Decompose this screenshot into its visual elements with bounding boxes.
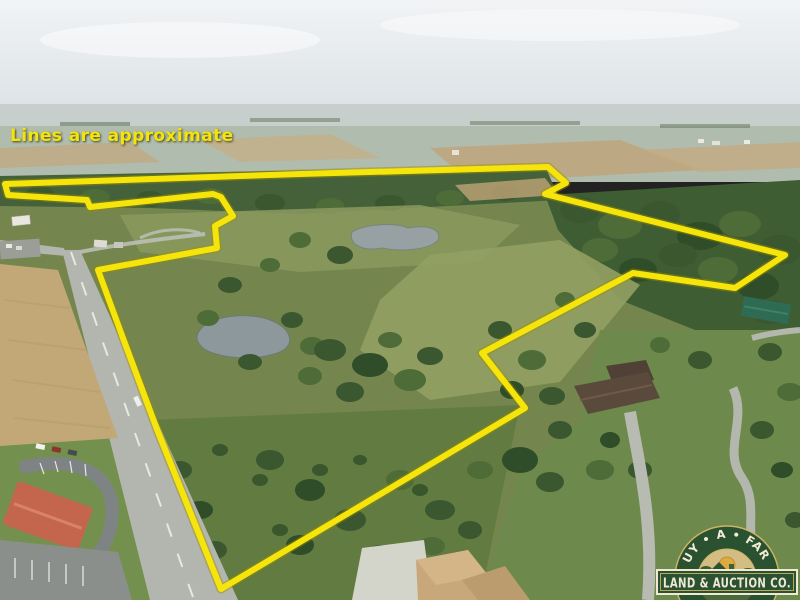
vehicle <box>16 246 22 250</box>
pond-small <box>351 225 438 250</box>
aerial-property-photo: Lines are approximate BUY • A • FARM LAN… <box>0 0 800 600</box>
cloud <box>40 22 320 58</box>
cloud <box>380 9 740 41</box>
logo-banner-text: LAND & AUCTION CO. <box>663 576 791 592</box>
annotation-text: Lines are approximate <box>10 126 234 146</box>
vehicle <box>6 244 12 248</box>
aerial-scene: Lines are approximate BUY • A • FARM LAN… <box>0 0 800 600</box>
